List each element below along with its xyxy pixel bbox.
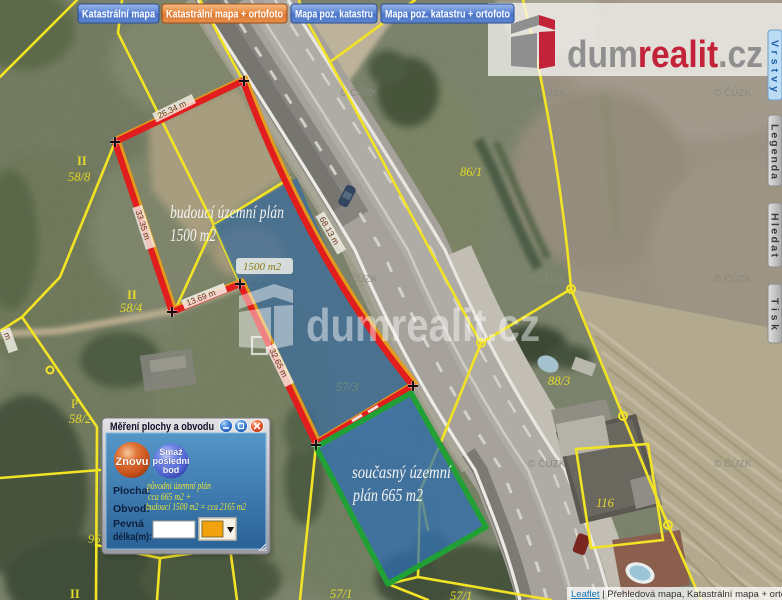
svg-text:plán 665 m2: plán 665 m2 xyxy=(351,485,423,505)
svg-text:© ČÚZK: © ČÚZK xyxy=(528,457,566,470)
svg-text:Mapa poz. katastru: Mapa poz. katastru xyxy=(295,9,373,21)
svg-text:88/3: 88/3 xyxy=(548,374,570,388)
svg-text:1500 m2: 1500 m2 xyxy=(170,225,216,245)
svg-text:58/8: 58/8 xyxy=(68,170,91,184)
svg-text:Tisk: Tisk xyxy=(769,298,781,330)
svg-text:Katastrální mapa + ortofoto: Katastrální mapa + ortofoto xyxy=(166,9,283,21)
svg-text:© ČÚZK: © ČÚZK xyxy=(528,86,566,99)
svg-text:II: II xyxy=(70,587,80,600)
svg-text:Leaflet | Přehledová mapa, Kat: Leaflet | Přehledová mapa, Katastrální m… xyxy=(571,589,782,600)
svg-text:II: II xyxy=(127,288,137,302)
svg-text:P: P xyxy=(71,397,78,411)
svg-text:dumrealit.cz: dumrealit.cz xyxy=(567,34,763,76)
svg-text:Katastrální mapa: Katastrální mapa xyxy=(82,9,156,21)
svg-text:© ČÚZK: © ČÚZK xyxy=(528,272,566,285)
svg-text:116: 116 xyxy=(596,496,615,510)
svg-text:budoucí územní plán: budoucí územní plán xyxy=(170,202,284,222)
svg-text:budoucí 1500 m2 = cca 2165 m2: budoucí 1500 m2 = cca 2165 m2 xyxy=(146,502,246,513)
svg-text:1500 m2: 1500 m2 xyxy=(243,261,282,273)
svg-text:58/4: 58/4 xyxy=(120,301,142,315)
svg-text:bod: bod xyxy=(163,465,180,475)
svg-text:58/2: 58/2 xyxy=(69,412,91,426)
svg-text:II: II xyxy=(77,154,87,168)
svg-text:Pevná: Pevná xyxy=(113,518,144,530)
svg-text:dumrealit.cz: dumrealit.cz xyxy=(306,299,540,351)
svg-text:Plocha:: Plocha: xyxy=(113,485,151,497)
svg-text:57/1: 57/1 xyxy=(330,587,352,600)
svg-text:délka(m):: délka(m): xyxy=(113,531,152,543)
svg-text:© ČÚZK: © ČÚZK xyxy=(714,457,752,470)
svg-text:96: 96 xyxy=(88,532,101,546)
svg-text:původní územní plán: původní územní plán xyxy=(146,481,211,492)
svg-text:Obvod:: Obvod: xyxy=(113,503,150,515)
svg-text:současný územní: současný územní xyxy=(352,462,453,482)
svg-text:57/1: 57/1 xyxy=(450,589,472,600)
svg-text:© ČÚZK: © ČÚZK xyxy=(714,86,752,99)
svg-text:86/1: 86/1 xyxy=(460,165,482,179)
svg-text:© ČÚZK: © ČÚZK xyxy=(714,272,752,285)
svg-text:Mapa poz. katastru + ortofoto: Mapa poz. katastru + ortofoto xyxy=(385,9,510,21)
svg-text:Znovu: Znovu xyxy=(116,456,149,468)
svg-text:Legenda: Legenda xyxy=(769,124,781,179)
svg-text:Měření plochy a obvodu: Měření plochy a obvodu xyxy=(110,421,214,433)
